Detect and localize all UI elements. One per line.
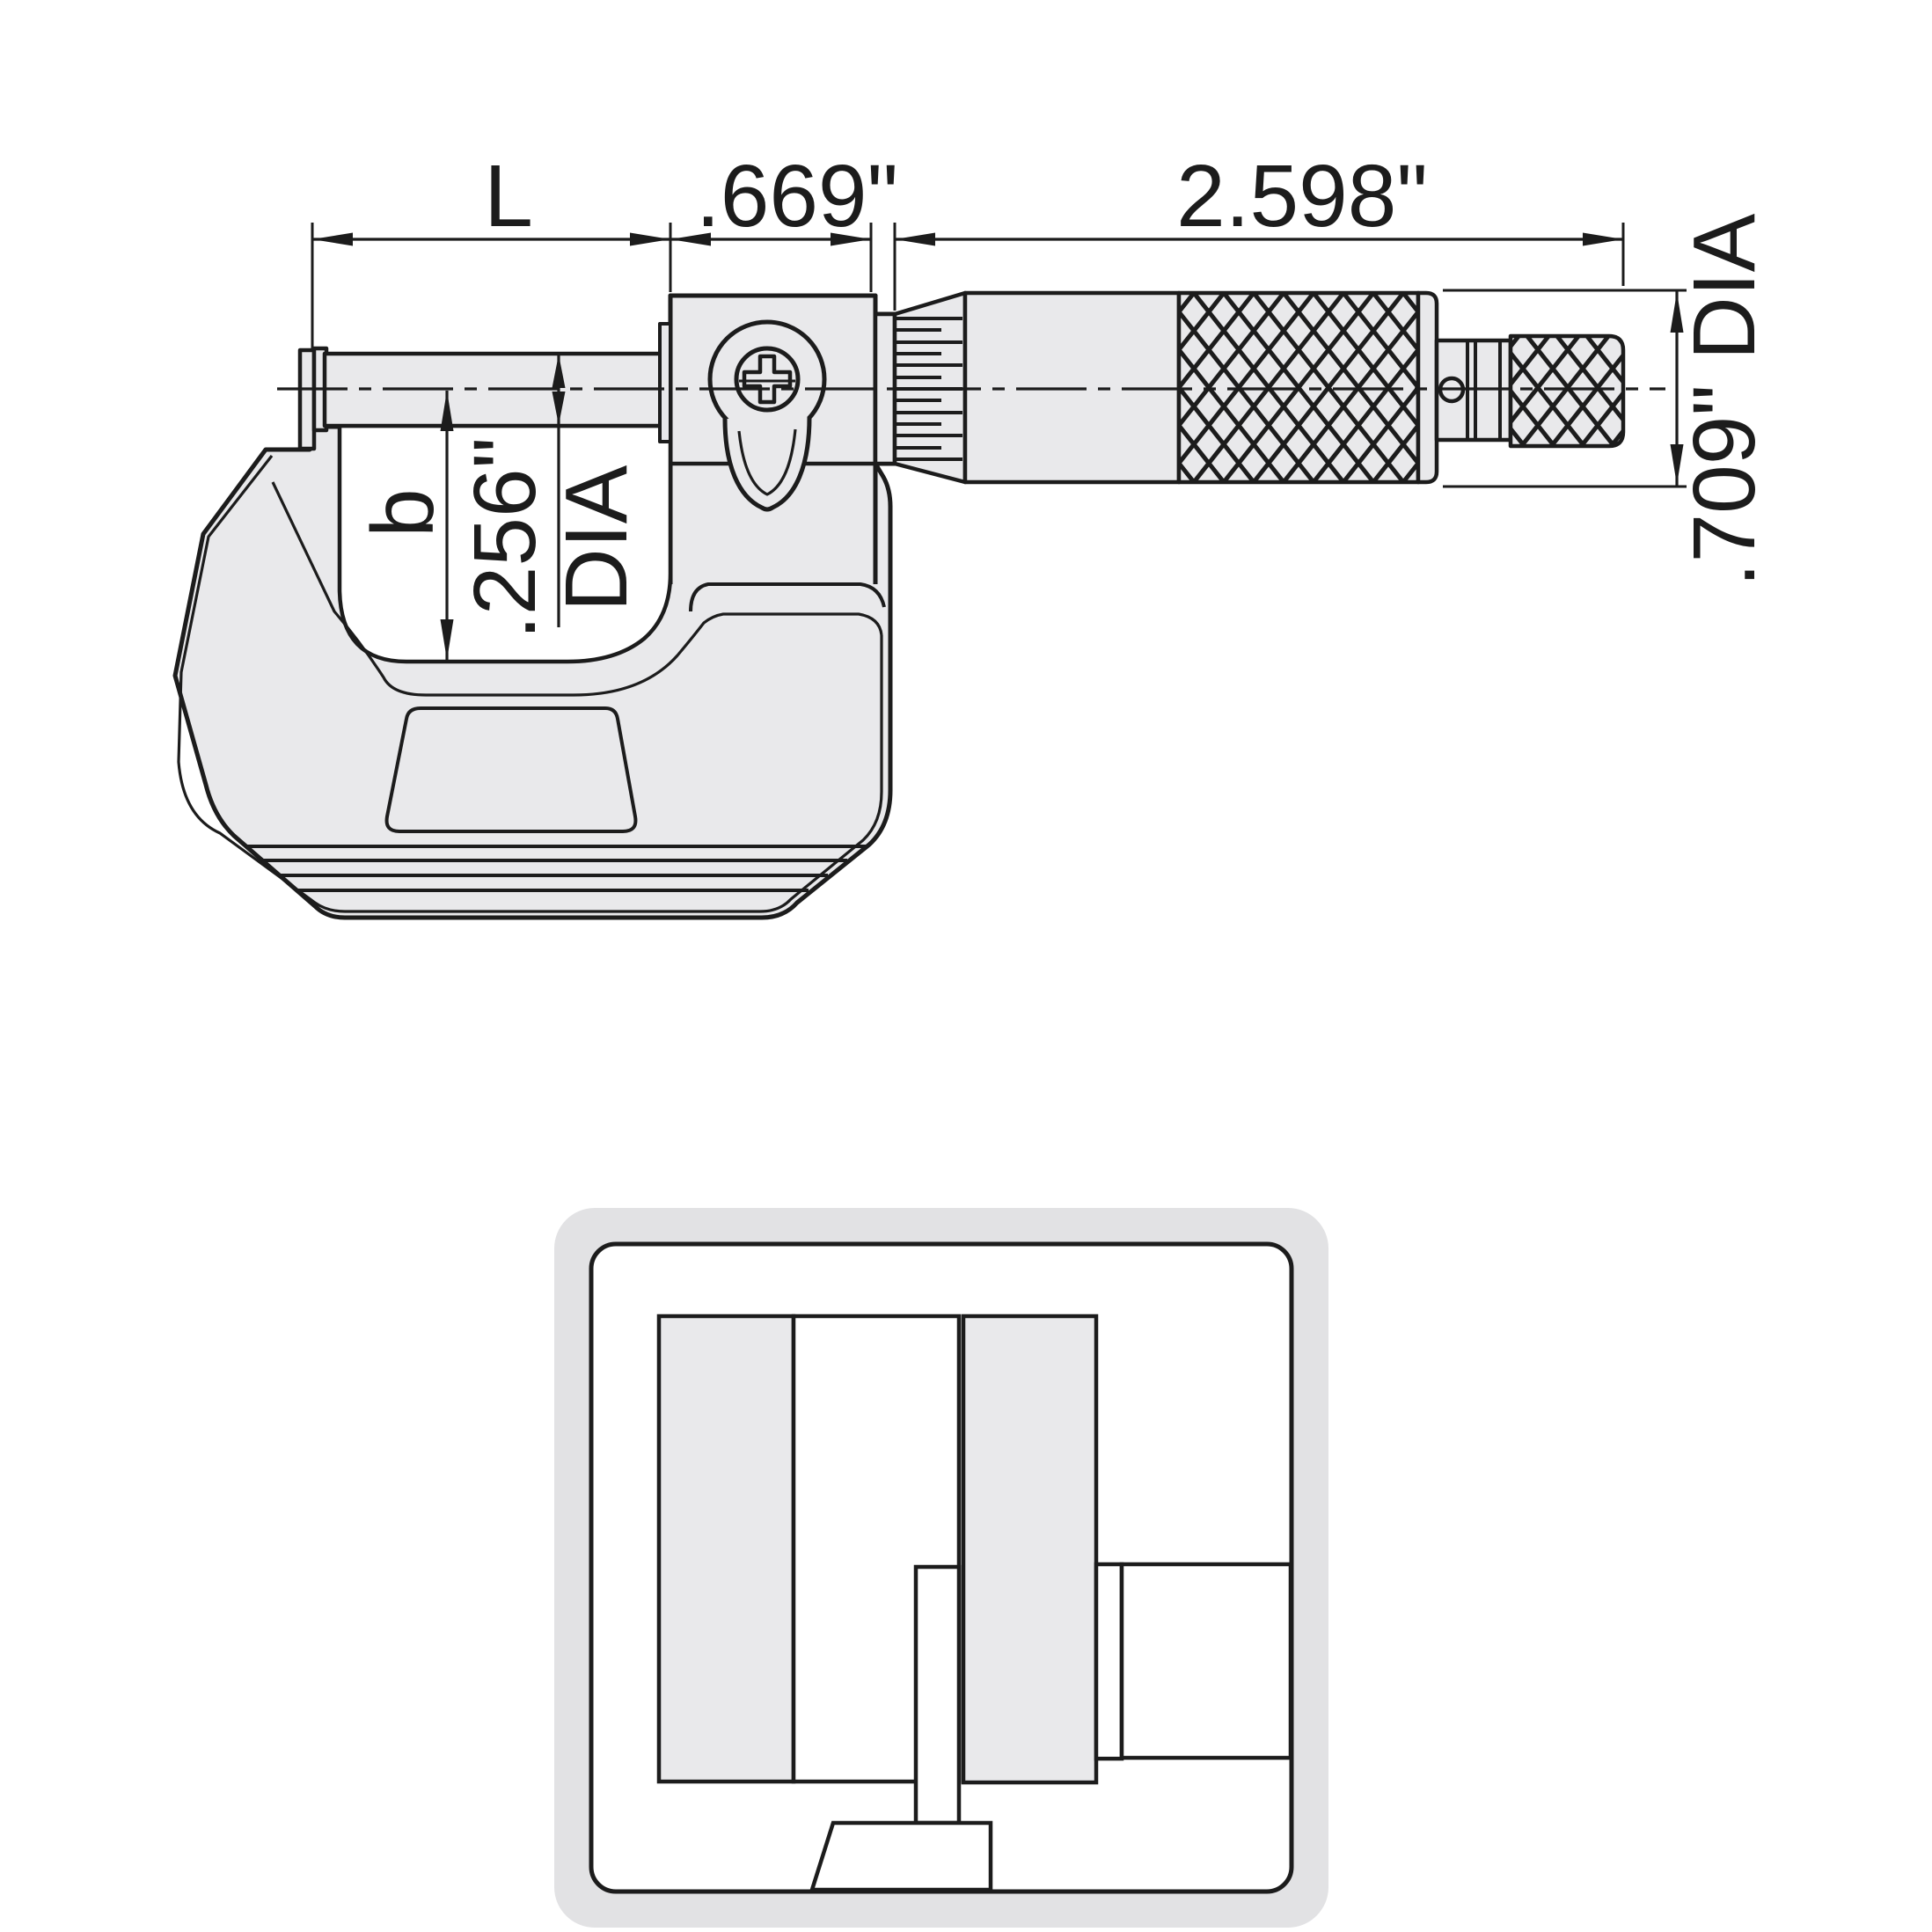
dim-label-spindle-diameter-unit: DIA [547,465,646,611]
dim-label-rod-length: L [484,147,533,245]
body-face-tab [660,324,670,442]
inset-spindle-neck [1096,1564,1122,1759]
dimension-rod-length: L [312,147,670,246]
inset-left-block [659,1316,794,1782]
dim-label-body-width: .669" [696,147,898,245]
frame-center-panel [387,708,636,831]
ratchet-knob [1511,336,1623,446]
anvil-bar [300,350,314,449]
dimension-thimble-diameter: .709" DIA [1671,213,1775,587]
inset-body-block [1122,1564,1291,1758]
dim-label-thimble-diameter: .709" DIA [1675,213,1774,587]
dim-label-spindle-diameter: .256" [456,437,554,640]
inset-anvil-base [812,1823,991,1890]
inset-anvil-stem [916,1567,959,1823]
inset-right-block [963,1316,1096,1782]
dimension-body-width: .669" [670,147,898,246]
technical-drawing: L .669" 2.598" .709" DIA b [0,0,1932,1932]
micrometer-side-view [175,293,1665,918]
dimension-thimble-length: 2.598" [895,147,1623,246]
dim-label-throat-depth: b [354,488,452,538]
application-inset [554,1208,1328,1928]
dim-label-thimble-length: 2.598" [1176,147,1428,245]
drawing-page: L .669" 2.598" .709" DIA b [0,0,1932,1932]
